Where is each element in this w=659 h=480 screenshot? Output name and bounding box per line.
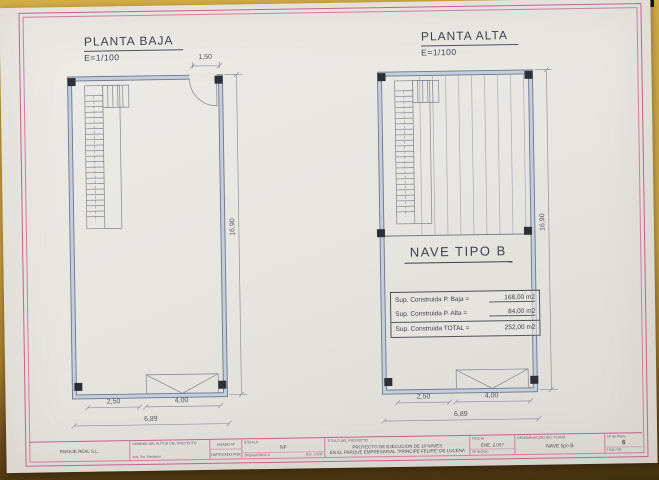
built-area-table: Sup. Construida P. Baja = 168,00 m2 Sup.… [390, 290, 541, 338]
left-dim-a: 2,50 [99, 398, 129, 405]
plan-name-value: NAVE tipo B [515, 439, 604, 454]
right-dim-height: 16,90 [539, 205, 547, 239]
right-dim-a: 2,50 [408, 393, 438, 400]
photo-scene: PLANTA BAJA E=1/100 1,50 2,50 4,00 6,89 … [0, 0, 659, 480]
right-dim-total: 6,89 [446, 411, 476, 418]
left-door-dimension: 1,50 [190, 54, 220, 61]
sheet-content: PLANTA BAJA E=1/100 1,50 2,50 4,00 6,89 … [0, 0, 658, 473]
left-dim-total: 6,89 [136, 416, 166, 423]
left-plan-title: PLANTA BAJA [84, 33, 184, 52]
title-block-visado: VISADO Nº RATIFICADO POR [210, 439, 242, 459]
right-plan-scale: E=1/100 [421, 47, 457, 58]
title-block-date: FECHA ENE. 2.007 Nº archivo [470, 435, 515, 455]
title-block-author: NOMBRE DEL AUTOR DEL PROYECTO Arq. Tec. … [130, 440, 210, 460]
title-block-promotor: PARAJE REAL S.L. [29, 441, 130, 462]
table-row: Sup. Construida TOTAL = 252,00 m2 [391, 319, 539, 337]
area-value: 84,00 m2 [489, 308, 535, 317]
title-block-escala: ESCALA NF Original DIN A-3 Esc. 1/100 [242, 438, 325, 458]
left-dim-b: 4,00 [167, 397, 197, 404]
promotor-name: PARAJE REAL S.L. [29, 441, 129, 462]
title-block-sheet-number: Nº de Plano 6 Hoja / de [605, 433, 642, 453]
area-value: 252,00 m2 [489, 324, 535, 332]
door-opening [189, 73, 216, 81]
nave-type-label: NAVE TIPO B [383, 243, 533, 264]
door-swing [190, 79, 217, 106]
drawing-sheet: PLANTA BAJA E=1/100 1,50 2,50 4,00 6,89 … [0, 0, 658, 473]
project-title: PROYECTO DE EJECUCION DE 10 NAVES EN EL … [325, 441, 469, 457]
area-label: Sup. Construida TOTAL = [395, 325, 469, 333]
title-block-project: TITULO DEL PROYECTO PROYECTO DE EJECUCIO… [325, 436, 470, 457]
right-plan-title: PLANTA ALTA [421, 28, 518, 47]
area-label: Sup. Construida P. Baja = [395, 295, 469, 303]
title-block-plan-name: DENOMINACION DEL PLANO NAVE tipo B [515, 434, 605, 454]
left-dim-height: 16,90 [229, 210, 237, 244]
left-plan-scale: E=1/100 [84, 52, 120, 63]
area-value: 168,00 m2 [489, 294, 535, 303]
area-label: Sup. Construida P. Alta = [395, 310, 467, 318]
right-dim-b: 4,00 [476, 392, 506, 399]
